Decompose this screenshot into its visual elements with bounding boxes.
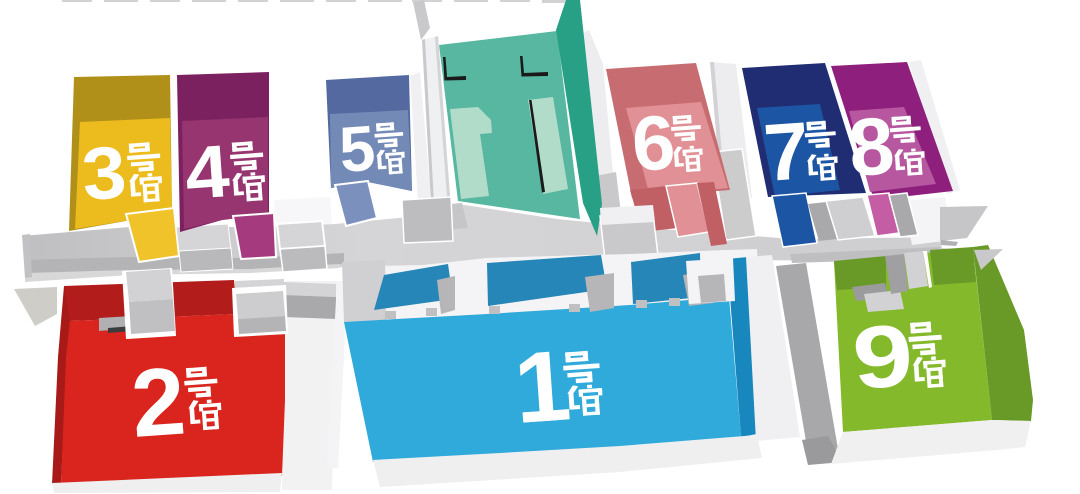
svg-text:3: 3	[79, 130, 129, 216]
svg-text:6: 6	[629, 99, 678, 188]
svg-text:1: 1	[511, 329, 574, 445]
svg-text:9: 9	[849, 305, 916, 408]
svg-text:7: 7	[761, 106, 812, 199]
svg-text:4: 4	[182, 129, 232, 215]
svg-text:2: 2	[128, 347, 189, 457]
svg-text:8: 8	[846, 101, 897, 194]
svg-text:5: 5	[337, 112, 378, 186]
